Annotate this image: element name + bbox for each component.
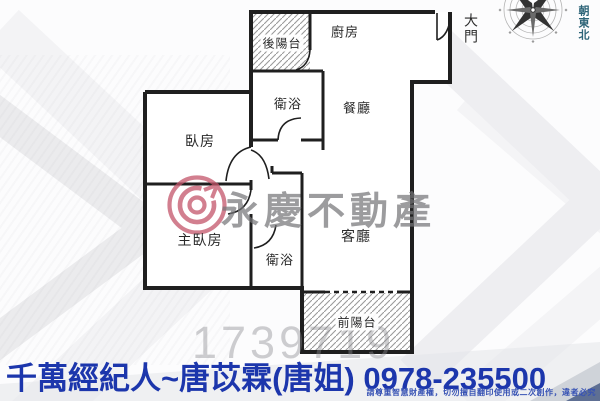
orientation-label: 朝東北 bbox=[575, 5, 591, 41]
room-label-dining: 餐廳 bbox=[343, 98, 371, 117]
compass-rose-icon bbox=[499, 0, 568, 43]
copyright-disclaimer: 請尊重智慧財產權，切勿擅自翻印使用或二次創作，違者必究 bbox=[367, 387, 597, 398]
room-label-bedroom: 臥房 bbox=[185, 131, 215, 151]
room-label-front-balcony: 前陽台 bbox=[335, 314, 378, 331]
room-label-living: 客廳 bbox=[341, 226, 371, 246]
room-label-bathroom-lower: 衛浴 bbox=[266, 250, 294, 269]
room-label-kitchen: 廚房 bbox=[331, 22, 359, 41]
floor-plan-page: 永慶不動產 1739719 後陽台 廚房 衛浴 餐廳 臥房 主臥房 衛浴 客廳 … bbox=[0, 0, 600, 401]
room-label-back-balcony: 後陽台 bbox=[260, 35, 303, 52]
room-label-master-bedroom: 主臥房 bbox=[178, 230, 223, 250]
entrance-label: 大門 bbox=[459, 13, 479, 45]
room-label-bathroom-upper: 衛浴 bbox=[274, 94, 302, 113]
brand-watermark-text: 永慶不動產 bbox=[221, 180, 436, 235]
